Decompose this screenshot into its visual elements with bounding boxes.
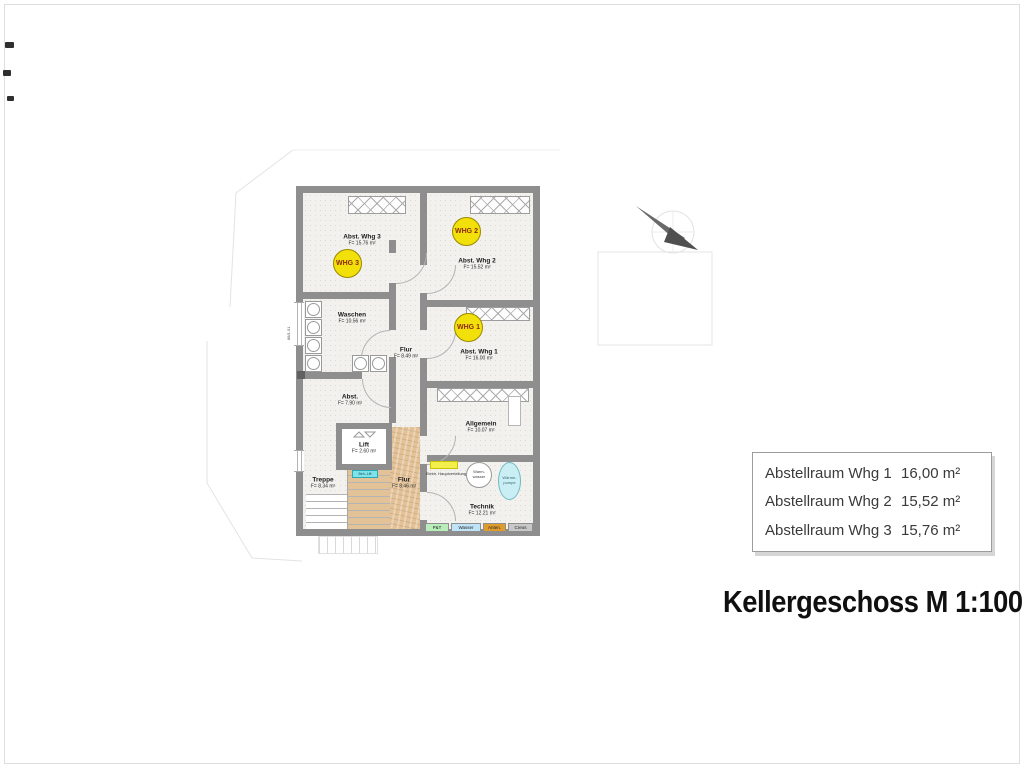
lift-wall: [386, 423, 392, 470]
room-name: Flur: [392, 476, 416, 483]
room-label-abst-whg3: Abst. Whg 3 F= 15.76 m²: [343, 233, 381, 246]
accessible-lift-marker: Beh.-Lift: [352, 470, 378, 478]
wall-segment: [303, 372, 362, 379]
wall-segment: [389, 240, 396, 253]
room-name: Flur: [394, 346, 418, 353]
wall-segment: [427, 300, 533, 307]
lightwell-whg2: [470, 196, 530, 214]
north-arrow-icon: [636, 206, 698, 253]
washing-machine-icon: [370, 355, 387, 372]
window-dimension: 88/1.01: [286, 327, 291, 340]
wall-segment: [296, 186, 303, 536]
room-name: Abst. Whg 3: [343, 233, 381, 240]
room-area: F= 15.76 m²: [343, 241, 381, 247]
stair-stringer: [347, 468, 348, 529]
room-name: Allgemein: [465, 420, 496, 427]
room-area: F= 8.34 m²: [311, 484, 335, 490]
room-label-lift: Lift F= 2.60 m²: [352, 441, 376, 454]
utility-pt: P&T: [425, 523, 449, 532]
room-name: Abst.: [338, 393, 362, 400]
exterior-stair: [318, 536, 378, 554]
room-name: Abst. Whg 1: [460, 348, 498, 355]
wall-segment: [303, 292, 389, 299]
wall-segment: [389, 299, 396, 330]
area-summary-table: Abstellraum Whg 1 16,00 m² Abstellraum W…: [752, 452, 992, 552]
room-name: Abst. Whg 2: [458, 257, 496, 264]
room-label-flur-unten: Flur F= 8.46 m²: [392, 476, 416, 489]
room-area: F= 2.60 m²: [352, 449, 376, 455]
room-label-waschen: Waschen F= 10.56 m²: [338, 311, 366, 324]
row-label: Abstellraum Whg 2: [765, 493, 901, 510]
room-label-abst-whg1: Abst. Whg 1 F= 16.00 m²: [460, 348, 498, 361]
room-area: F= 7.90 m²: [338, 401, 362, 407]
floor-plan-page: Beh.-Lift 88/1.01 Elektr. Hauptverteilun…: [0, 0, 1024, 768]
wall-segment: [420, 293, 427, 330]
wall-segment: [389, 357, 396, 379]
door-leaf-niche: [508, 396, 521, 426]
main-electric-panel-label: Elektr. Hauptverteilung: [426, 471, 466, 476]
washing-machine-icon: [305, 337, 322, 354]
utility-legend: P&T Wasser Anten. Creos: [425, 523, 533, 532]
table-row: Abstellraum Whg 3 15,76 m²: [765, 522, 979, 539]
room-area: F= 8.46 m²: [392, 484, 416, 490]
hot-water-label-2: wasser: [473, 475, 486, 480]
room-name: Lift: [352, 441, 376, 448]
hot-water-tank: Warm- wasser: [466, 462, 492, 488]
utility-wasser: Wasser: [451, 523, 481, 532]
window: [294, 450, 304, 472]
badge-whg1: WHG 1: [454, 313, 483, 342]
wall-segment: [389, 283, 396, 299]
row-label: Abstellraum Whg 3: [765, 522, 901, 539]
main-electric-panel: [430, 461, 458, 469]
stair-flight-lower: [306, 494, 348, 529]
room-area: F= 10.07 m²: [465, 428, 496, 434]
window: [294, 302, 304, 346]
neighbour-outline: [598, 252, 712, 345]
room-label-abst: Abst. F= 7.90 m²: [338, 393, 362, 406]
lightwell-whg3: [348, 196, 406, 214]
table-row: Abstellraum Whg 2 15,52 m²: [765, 493, 979, 510]
room-name: Treppe: [311, 476, 335, 483]
room-area: F= 8.49 m²: [394, 354, 418, 360]
washing-machine-icon: [305, 301, 322, 318]
room-area: F= 10.56 m²: [338, 319, 366, 325]
room-label-treppe: Treppe F= 8.34 m²: [311, 476, 335, 489]
wall-segment: [420, 464, 427, 492]
room-label-technik: Technik F= 12.21 m²: [468, 503, 495, 516]
wall-segment: [420, 358, 427, 436]
washing-machine-icon: [352, 355, 369, 372]
heat-pump-label-2: pumpe: [503, 481, 515, 486]
room-label-abst-whg2: Abst. Whg 2 F= 15.52 m²: [458, 257, 496, 270]
utility-creos: Creos: [508, 523, 533, 532]
badge-whg2: WHG 2: [452, 217, 481, 246]
room-area: F= 15.52 m²: [458, 265, 496, 271]
duct-block: [297, 371, 305, 379]
wall-segment: [533, 186, 540, 536]
washing-machine-icon: [305, 355, 322, 372]
washing-machine-icon: [305, 319, 322, 336]
utility-antenne: Anten.: [483, 523, 506, 532]
wall-segment: [296, 186, 540, 193]
row-value: 16,00 m²: [901, 465, 979, 482]
wall-segment: [427, 381, 533, 388]
room-area: F= 16.00 m²: [460, 356, 498, 362]
table-row: Abstellraum Whg 1 16,00 m²: [765, 465, 979, 482]
row-value: 15,76 m²: [901, 522, 979, 539]
lift-symbol-icon: [350, 431, 378, 438]
room-name: Technik: [468, 503, 495, 510]
room-label-allgemein: Allgemein F= 10.07 m²: [465, 420, 496, 433]
room-label-flur-oben: Flur F= 8.49 m²: [394, 346, 418, 359]
row-value: 15,52 m²: [901, 493, 979, 510]
drawing-title: Kellergeschoss M 1:100: [723, 584, 1023, 620]
row-label: Abstellraum Whg 1: [765, 465, 901, 482]
room-name: Waschen: [338, 311, 366, 318]
room-area: F= 12.21 m²: [468, 511, 495, 517]
badge-whg3: WHG 3: [333, 249, 362, 278]
heat-pump: Wärme- pumpe: [498, 462, 521, 500]
